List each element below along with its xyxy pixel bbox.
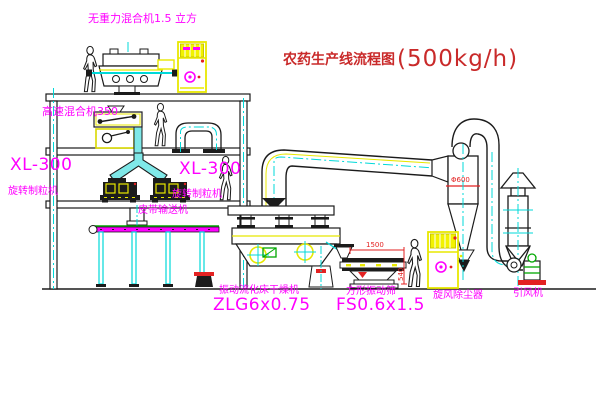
granulator-right-name-label: 旋转制粒机	[172, 190, 222, 200]
exhaust-duct	[262, 150, 448, 212]
granulator-left-machine	[100, 178, 140, 203]
person-top-floor	[84, 46, 97, 91]
sieve-length-dimension: 1500	[366, 242, 384, 249]
cyclone-label: 旋风除尘器	[433, 291, 483, 301]
person-mixer-floor	[154, 103, 166, 145]
gravity-mixer-label: 无重力混合机1.5 立方	[88, 13, 197, 24]
person-near-sieve	[408, 239, 422, 286]
granulator-left-model-label: XL-300	[10, 157, 72, 174]
high-speed-mixer-label: 高速混合机350	[42, 106, 118, 117]
fluid-bed-dryer-machine	[194, 206, 340, 289]
granulator-right-model-label: XL-300	[179, 161, 241, 178]
belt-conveyor-label: 皮带输送机	[138, 206, 188, 216]
title-capacity: (500kg/h)	[397, 46, 518, 72]
control-cabinet-lower	[428, 232, 458, 288]
flow-diagram-canvas: 无重力混合机1.5 立方 农药生产线流程图 (500kg/h) 高速混合机350…	[0, 0, 600, 403]
induced-draft-fan-machine	[507, 254, 546, 285]
sieve-model-label: FS0.6x1.5	[336, 297, 425, 314]
granulator-left-name-label: 旋转制粒机	[8, 187, 58, 197]
diagram-title: 农药生产线流程图 (500kg/h)	[283, 46, 518, 72]
control-cabinet-upper	[178, 42, 206, 92]
title-text-zh: 农药生产线流程图	[283, 49, 395, 72]
fan-label: 引风机	[513, 289, 543, 299]
sieve-height-dimension: 540	[398, 268, 405, 281]
dryer-model-label: ZLG6x0.75	[213, 297, 311, 314]
cyclone-diameter-dimension: Φ600	[451, 177, 470, 184]
gravity-free-mixer	[86, 42, 178, 95]
y-feed-duct	[110, 153, 167, 182]
